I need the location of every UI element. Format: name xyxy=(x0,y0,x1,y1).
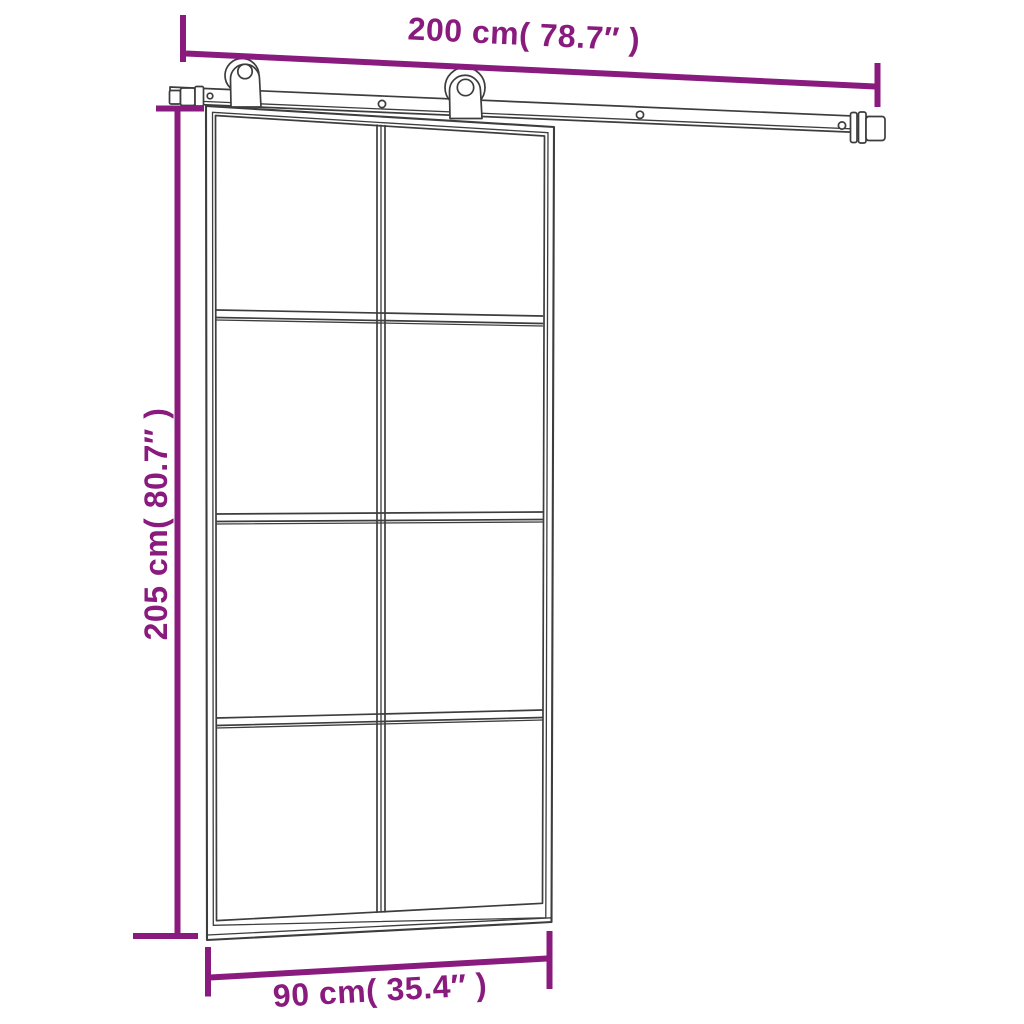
rail-screw-hole xyxy=(378,100,385,107)
rail-end-stop-right xyxy=(851,112,886,143)
roller-left xyxy=(225,59,261,108)
door-height-label: 205 cm( 80.7″ ) xyxy=(138,408,174,641)
rail-screw-hole xyxy=(207,93,213,99)
roller-left-hub xyxy=(238,64,252,78)
roller-right-hub xyxy=(457,79,473,95)
dimension-door-height: 205 cm( 80.7″ ) xyxy=(133,109,204,937)
dim-top-line xyxy=(186,54,875,87)
rail-width-label: 200 cm( 78.7″ ) xyxy=(407,10,641,57)
roller-right xyxy=(445,68,485,119)
product-dimension-diagram: 200 cm( 78.7″ ) 205 cm( 80.7″ ) 90 cm( 3… xyxy=(0,0,1024,1024)
door xyxy=(206,106,554,940)
dimension-door-width: 90 cm( 35.4″ ) xyxy=(208,931,550,1014)
sliding-door-diagram: 200 cm( 78.7″ ) 205 cm( 80.7″ ) 90 cm( 3… xyxy=(0,0,1024,1024)
rail-screw-hole xyxy=(636,111,643,118)
rail-screw-hole xyxy=(838,122,845,129)
